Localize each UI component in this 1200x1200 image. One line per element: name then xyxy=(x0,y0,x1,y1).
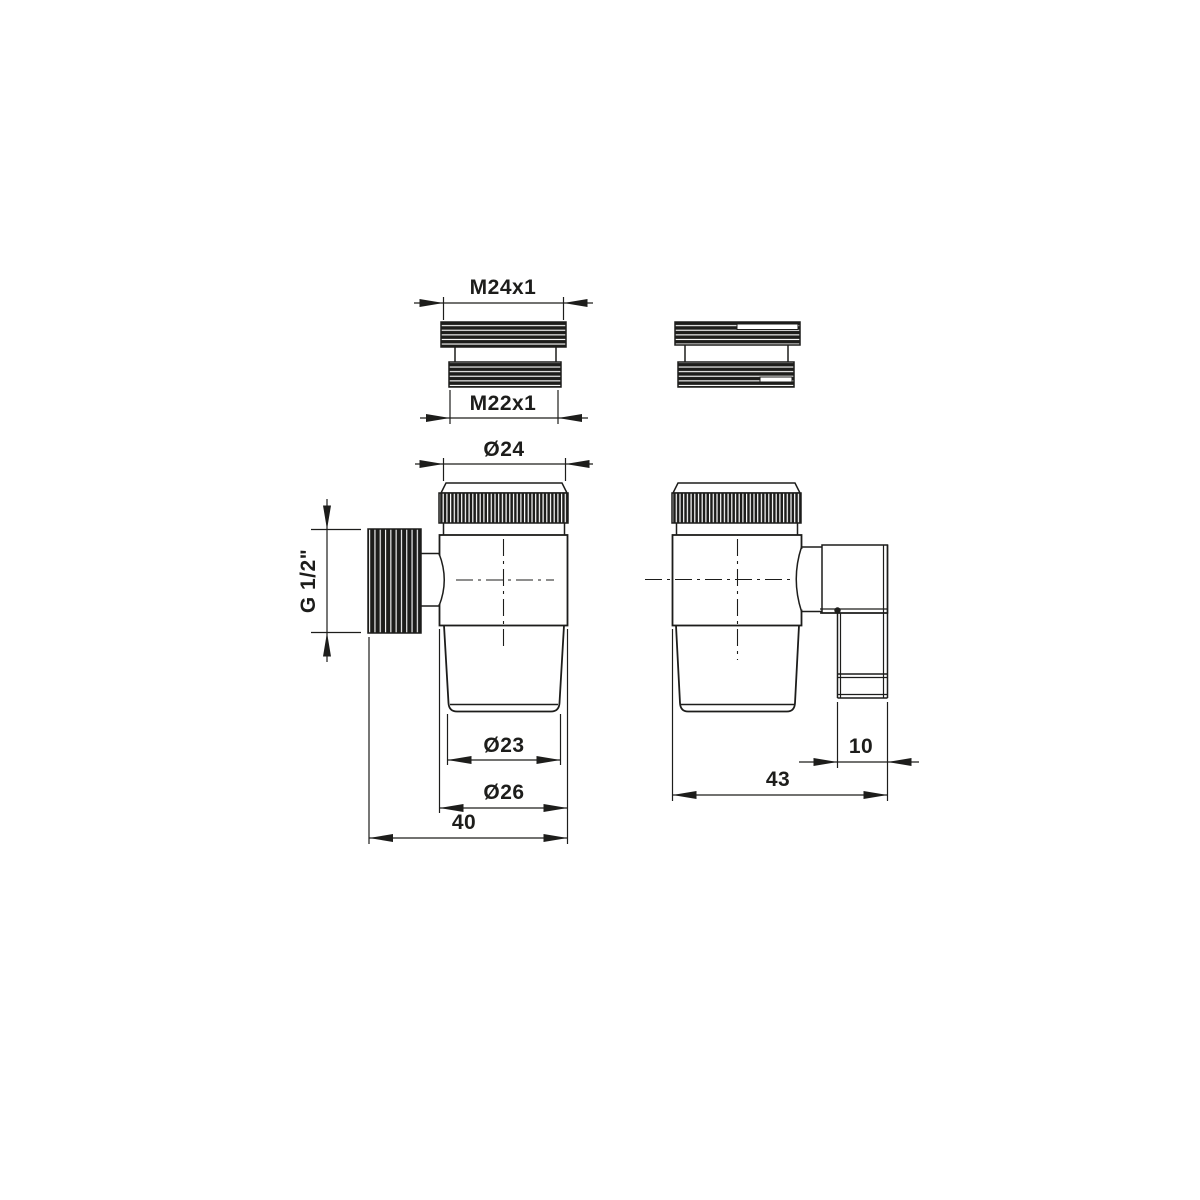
arrow-right-icon xyxy=(814,758,838,766)
arrow-left-icon xyxy=(558,414,582,422)
side-thread-g12 xyxy=(368,529,421,633)
valve-front-view xyxy=(368,483,568,712)
arrow-up-icon xyxy=(323,633,331,657)
adapter2-bottom-thread-band xyxy=(678,362,794,387)
dim-label-10: 10 xyxy=(849,735,873,759)
arrow-right-icon xyxy=(544,834,568,842)
dim-label-m24x1: M24x1 xyxy=(470,276,537,300)
knurled-ring-2 xyxy=(672,493,801,523)
elbow-horizontal-port xyxy=(822,545,888,613)
dim-label-43: 43 xyxy=(766,768,790,792)
elbow-fillet-erase xyxy=(799,549,805,610)
adapter-rotated-view xyxy=(675,322,800,387)
arrow-left-icon xyxy=(564,299,588,307)
arrow-left-icon xyxy=(369,834,393,842)
dim-label-d24: Ø24 xyxy=(483,438,524,462)
arrow-right-icon xyxy=(420,299,444,307)
adapter-front-view xyxy=(441,322,566,387)
arrow-down-icon xyxy=(323,506,331,530)
dim-label-m22x1: M22x1 xyxy=(470,392,537,416)
adapter2-thread-start-notch xyxy=(737,324,798,330)
arrow-left-icon xyxy=(888,758,912,766)
valve-side-view xyxy=(645,483,888,712)
dim-label-g12: G 1/2" xyxy=(297,549,321,613)
arrow-left-icon xyxy=(448,756,472,764)
dim-m24x1 xyxy=(414,297,593,320)
dim-label-d26: Ø26 xyxy=(483,781,524,805)
arrow-right-icon xyxy=(537,756,561,764)
arrow-right-icon xyxy=(426,414,450,422)
knurled-ring xyxy=(439,493,568,523)
arrow-left-icon xyxy=(566,460,590,468)
arrow-left-icon xyxy=(673,791,697,799)
elbow-corner-mark xyxy=(834,607,840,613)
cap2-top-rim xyxy=(673,483,800,493)
dim-label-40: 40 xyxy=(452,811,476,835)
dim-label-d23: Ø23 xyxy=(483,734,524,758)
arrow-right-icon xyxy=(420,460,444,468)
adapter-bottom-thread-band xyxy=(449,362,561,387)
technical-drawing: M24x1 M22x1 Ø24 G 1/2" Ø23 Ø26 40 43 10 xyxy=(0,0,1200,1200)
arrow-right-icon xyxy=(864,791,888,799)
adapter2-thread-end-notch xyxy=(760,377,792,382)
arrow-right-icon xyxy=(544,804,568,812)
drawing-linework xyxy=(0,0,1200,1200)
cap-top-rim xyxy=(441,483,567,493)
adapter-top-thread-band xyxy=(441,322,566,347)
